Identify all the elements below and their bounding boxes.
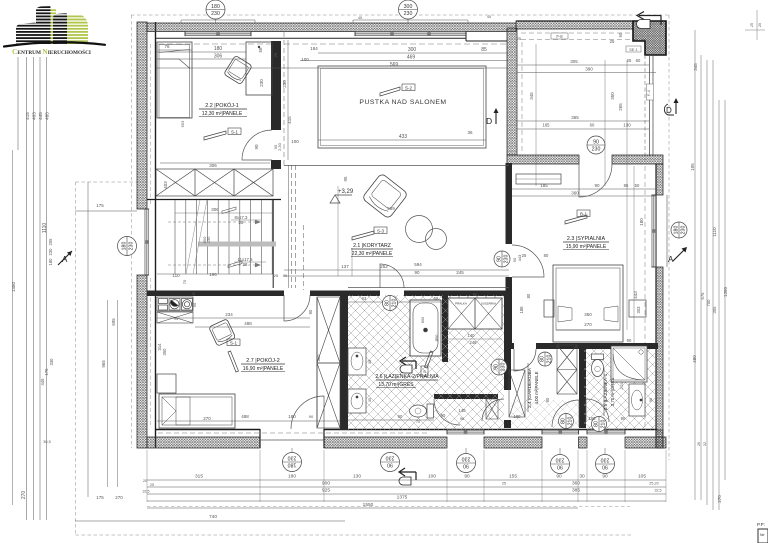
- svg-text:234: 234: [225, 312, 233, 317]
- svg-text:S-1: S-1: [231, 130, 239, 135]
- svg-text:96: 96: [649, 398, 653, 402]
- svg-text:28: 28: [243, 262, 248, 267]
- svg-text:Ø50: Ø50: [435, 335, 439, 342]
- svg-text:70: 70: [182, 279, 187, 284]
- svg-text:90: 90: [593, 139, 599, 145]
- svg-text:270: 270: [21, 491, 27, 500]
- svg-text:28: 28: [239, 220, 244, 225]
- svg-text:2.7 |POKÓJ-2: 2.7 |POKÓJ-2: [246, 357, 279, 364]
- svg-text:60: 60: [590, 123, 595, 128]
- svg-text:415: 415: [287, 116, 292, 124]
- svg-text:230: 230: [259, 79, 264, 87]
- svg-text:90: 90: [621, 416, 626, 421]
- svg-text:700: 700: [706, 299, 711, 307]
- svg-text:925: 925: [322, 488, 330, 494]
- svg-text:45: 45: [487, 15, 491, 19]
- svg-text:230: 230: [556, 456, 565, 462]
- svg-text:F-4: F-4: [647, 90, 651, 96]
- svg-text:140: 140: [459, 408, 467, 413]
- svg-text:25: 25: [150, 483, 154, 487]
- svg-text:345: 345: [529, 92, 534, 100]
- svg-text:25: 25: [627, 58, 632, 63]
- svg-text:25: 25: [610, 39, 615, 44]
- svg-text:900: 900: [322, 481, 330, 487]
- svg-text:1380: 1380: [723, 286, 728, 297]
- svg-text:230: 230: [601, 456, 610, 462]
- svg-text:2.2 |POKÓJ-1: 2.2 |POKÓJ-1: [205, 102, 238, 109]
- svg-text:480: 480: [692, 355, 697, 363]
- svg-text:90: 90: [308, 309, 313, 314]
- svg-text:360: 360: [584, 312, 592, 317]
- svg-text:252: 252: [380, 264, 388, 269]
- svg-text:270: 270: [115, 495, 123, 500]
- svg-text:350: 350: [162, 348, 167, 356]
- svg-text:360: 360: [571, 191, 579, 196]
- svg-text:85: 85: [481, 47, 487, 53]
- svg-text:210: 210: [392, 299, 398, 308]
- svg-text:90: 90: [473, 292, 478, 297]
- svg-text:22,30 m²|PANELE: 22,30 m²|PANELE: [352, 251, 393, 257]
- svg-text:350: 350: [610, 92, 615, 100]
- svg-text:2.1 |KORYTARZ: 2.1 |KORYTARZ: [353, 243, 391, 249]
- svg-text:90: 90: [192, 302, 197, 307]
- svg-text:100: 100: [291, 139, 299, 144]
- svg-text:90: 90: [441, 413, 446, 418]
- svg-text:185: 185: [540, 183, 548, 188]
- svg-text:469: 469: [407, 55, 416, 61]
- svg-text:90: 90: [398, 414, 403, 419]
- svg-text:A: A: [62, 255, 68, 264]
- svg-text:180: 180: [214, 46, 223, 52]
- svg-text:230: 230: [288, 454, 297, 460]
- svg-text:35: 35: [368, 398, 372, 402]
- svg-text:+3,29: +3,29: [338, 189, 354, 195]
- svg-text:80: 80: [539, 356, 545, 362]
- svg-text:16,90 m²|PANELE: 16,90 m²|PANELE: [243, 366, 284, 372]
- svg-text:210: 210: [568, 417, 574, 426]
- svg-text:85: 85: [624, 183, 629, 188]
- svg-text:306: 306: [211, 207, 219, 212]
- svg-text:95: 95: [343, 176, 348, 182]
- svg-text:1110: 1110: [712, 227, 717, 237]
- svg-text:230: 230: [206, 236, 211, 243]
- svg-text:20: 20: [143, 479, 147, 483]
- svg-text:A: A: [668, 255, 674, 264]
- svg-text:175: 175: [44, 368, 49, 376]
- svg-text:245: 245: [456, 270, 464, 275]
- svg-text:80: 80: [593, 421, 599, 427]
- svg-text:230: 230: [504, 255, 510, 264]
- svg-text:255: 255: [48, 238, 53, 246]
- svg-text:1375: 1375: [397, 495, 408, 501]
- svg-text:230: 230: [282, 80, 287, 88]
- svg-text:2,23: 2,23: [620, 383, 624, 390]
- svg-text:230: 230: [386, 454, 395, 460]
- svg-text:569: 569: [387, 206, 395, 211]
- svg-text:1380: 1380: [11, 281, 16, 292]
- svg-text:265: 265: [618, 103, 623, 111]
- svg-text:80: 80: [526, 293, 531, 298]
- svg-text:90: 90: [556, 474, 562, 480]
- svg-text:180: 180: [514, 414, 522, 419]
- svg-text:180: 180: [121, 242, 127, 251]
- svg-text:D: D: [486, 116, 492, 126]
- svg-text:80: 80: [545, 397, 550, 402]
- svg-text:35: 35: [368, 360, 372, 364]
- svg-text:485: 485: [45, 112, 50, 120]
- svg-text:90: 90: [627, 338, 632, 343]
- svg-text:345: 345: [693, 63, 698, 71]
- svg-text:306: 306: [209, 163, 217, 168]
- svg-text:740: 740: [209, 514, 217, 520]
- svg-text:90: 90: [309, 414, 314, 419]
- svg-text:166: 166: [589, 416, 597, 421]
- svg-text:180: 180: [288, 414, 296, 419]
- svg-text:30,5: 30,5: [43, 440, 50, 444]
- svg-text:94: 94: [174, 317, 178, 321]
- svg-text:403: 403: [32, 112, 37, 120]
- svg-text:270: 270: [584, 322, 592, 327]
- svg-text:60: 60: [636, 58, 641, 63]
- svg-text:140: 140: [468, 333, 476, 338]
- svg-text:594: 594: [414, 262, 422, 267]
- svg-text:S-1: S-1: [230, 341, 238, 346]
- svg-text:S: S: [423, 369, 426, 374]
- svg-text:25,20: 25,20: [649, 482, 659, 486]
- svg-text:180: 180: [288, 462, 297, 468]
- svg-text:180: 180: [211, 4, 220, 10]
- svg-text:60: 60: [618, 32, 623, 37]
- svg-text:230: 230: [129, 242, 135, 251]
- svg-text:PRALKA: PRALKA: [455, 302, 467, 306]
- svg-text:100: 100: [301, 57, 309, 62]
- svg-text:25: 25: [522, 253, 527, 258]
- svg-text:4,00 m²|PANELE: 4,00 m²|PANELE: [534, 371, 539, 404]
- svg-text:58: 58: [258, 47, 263, 53]
- svg-text:25: 25: [502, 482, 506, 486]
- svg-text:105: 105: [638, 474, 646, 480]
- svg-text:137: 137: [341, 264, 349, 269]
- svg-text:175: 175: [96, 203, 104, 208]
- svg-text:569: 569: [390, 62, 399, 68]
- svg-text:433: 433: [399, 134, 408, 140]
- svg-text:26: 26: [697, 442, 701, 446]
- svg-text:180: 180: [673, 226, 679, 235]
- svg-text:32: 32: [703, 442, 707, 446]
- svg-text:90: 90: [387, 462, 393, 468]
- svg-text:248: 248: [470, 340, 478, 345]
- svg-text:PUSTKA NAD SALONEM: PUSTKA NAD SALONEM: [359, 99, 446, 106]
- svg-text:25: 25: [517, 37, 521, 41]
- svg-text:230: 230: [48, 248, 53, 256]
- svg-text:210: 210: [547, 355, 553, 364]
- svg-text:F-8: F-8: [556, 34, 563, 39]
- svg-text:130: 130: [623, 123, 631, 128]
- svg-text:25: 25: [274, 273, 279, 278]
- svg-text:105: 105: [690, 163, 695, 171]
- svg-text:20: 20: [758, 23, 762, 27]
- svg-text:385: 385: [572, 488, 580, 494]
- svg-text:90: 90: [254, 144, 259, 150]
- svg-text:B-1: B-1: [580, 212, 588, 217]
- svg-text:360: 360: [572, 481, 580, 487]
- svg-text:488: 488: [244, 321, 252, 326]
- svg-text:90: 90: [414, 270, 420, 275]
- svg-text:330: 330: [49, 358, 54, 366]
- svg-text:63: 63: [362, 296, 367, 301]
- svg-text:45: 45: [358, 16, 362, 20]
- svg-text:30: 30: [579, 474, 585, 480]
- svg-text:S-3: S-3: [377, 229, 385, 234]
- svg-text:175: 175: [96, 495, 104, 500]
- svg-text:188: 188: [519, 306, 524, 314]
- svg-text:300: 300: [408, 47, 417, 53]
- svg-text:25: 25: [750, 23, 754, 27]
- svg-text:90: 90: [557, 464, 563, 470]
- svg-text:230: 230: [681, 226, 687, 235]
- svg-text:26: 26: [273, 52, 278, 57]
- svg-text:300: 300: [404, 4, 413, 10]
- svg-text:36: 36: [192, 292, 196, 296]
- svg-text:1110: 1110: [42, 223, 48, 234]
- svg-text:230: 230: [404, 11, 413, 17]
- svg-text:80: 80: [544, 253, 549, 258]
- svg-text:130: 130: [353, 474, 361, 480]
- svg-text:70: 70: [416, 420, 420, 424]
- svg-text:180: 180: [639, 218, 644, 226]
- svg-text:D: D: [666, 106, 672, 115]
- svg-text:210: 210: [601, 420, 607, 429]
- svg-text:90: 90: [463, 463, 469, 469]
- svg-text:SE-1: SE-1: [629, 48, 637, 52]
- svg-text:80: 80: [384, 300, 390, 306]
- svg-text:90: 90: [283, 273, 288, 278]
- svg-text:270: 270: [203, 416, 211, 421]
- svg-text:2,30: 2,30: [277, 142, 282, 151]
- svg-text:965: 965: [101, 360, 106, 368]
- svg-text:96: 96: [460, 417, 464, 421]
- svg-text:180: 180: [288, 474, 296, 480]
- svg-text:180: 180: [48, 258, 53, 266]
- svg-text:653: 653: [180, 120, 185, 127]
- svg-text:600: 600: [421, 317, 425, 323]
- svg-text:2.6 |ŁAZIENKA-2/PRALNIA: 2.6 |ŁAZIENKA-2/PRALNIA: [375, 374, 439, 380]
- svg-text:184: 184: [310, 46, 318, 51]
- svg-text:36: 36: [467, 130, 473, 135]
- svg-text:80: 80: [560, 418, 566, 424]
- svg-text:305: 305: [570, 59, 578, 64]
- svg-text:76: 76: [164, 44, 170, 49]
- svg-text:P.P:: P.P:: [757, 522, 765, 527]
- svg-text:110: 110: [172, 273, 180, 278]
- svg-text:230: 230: [211, 11, 220, 17]
- svg-text:390: 390: [585, 67, 593, 72]
- svg-text:350: 350: [316, 354, 321, 362]
- svg-text:58: 58: [434, 296, 439, 301]
- svg-text:403: 403: [163, 181, 168, 189]
- svg-text:445: 445: [40, 378, 45, 386]
- svg-text:90: 90: [602, 474, 608, 480]
- svg-text:3,70 m²|GRES: 3,70 m²|GRES: [610, 378, 615, 407]
- svg-text:13,70 m²|GRES: 13,70 m²|GRES: [378, 382, 414, 388]
- svg-text:155: 155: [509, 474, 517, 480]
- svg-text:415: 415: [25, 112, 30, 120]
- svg-text:306: 306: [214, 54, 223, 60]
- svg-text:90: 90: [464, 474, 470, 480]
- svg-text:230: 230: [592, 147, 601, 153]
- svg-text:305: 305: [712, 306, 717, 314]
- svg-text:S-2: S-2: [405, 86, 413, 91]
- svg-text:90: 90: [602, 464, 608, 470]
- svg-text:90: 90: [496, 256, 502, 262]
- svg-text:675: 675: [700, 292, 705, 300]
- svg-text:50: 50: [635, 183, 640, 188]
- svg-text:315: 315: [195, 474, 203, 480]
- svg-text:90: 90: [594, 183, 600, 188]
- svg-text:445: 445: [38, 112, 43, 120]
- svg-text:365: 365: [571, 115, 579, 120]
- svg-text:SUSZARKA: SUSZARKA: [481, 302, 496, 306]
- svg-text:32,5: 32,5: [143, 490, 150, 494]
- svg-text:32,5: 32,5: [655, 489, 662, 493]
- svg-text:196: 196: [209, 272, 217, 277]
- svg-text:270: 270: [717, 495, 722, 503]
- svg-text:15,90 m²|PANELE: 15,90 m²|PANELE: [566, 244, 607, 250]
- svg-text:2.3 |SYPIALNIA: 2.3 |SYPIALNIA: [567, 236, 606, 242]
- svg-text:12,30 m²|PANELE: 12,30 m²|PANELE: [202, 111, 243, 117]
- svg-text:230: 230: [462, 455, 471, 461]
- svg-text:Ne: Ne: [760, 533, 765, 537]
- svg-text:1550: 1550: [363, 502, 374, 508]
- svg-text:303: 303: [636, 306, 641, 314]
- svg-text:100: 100: [428, 474, 436, 480]
- svg-text:695: 695: [111, 318, 116, 326]
- svg-text:488: 488: [241, 414, 249, 419]
- svg-text:165: 165: [543, 123, 551, 128]
- svg-text:443: 443: [633, 291, 638, 299]
